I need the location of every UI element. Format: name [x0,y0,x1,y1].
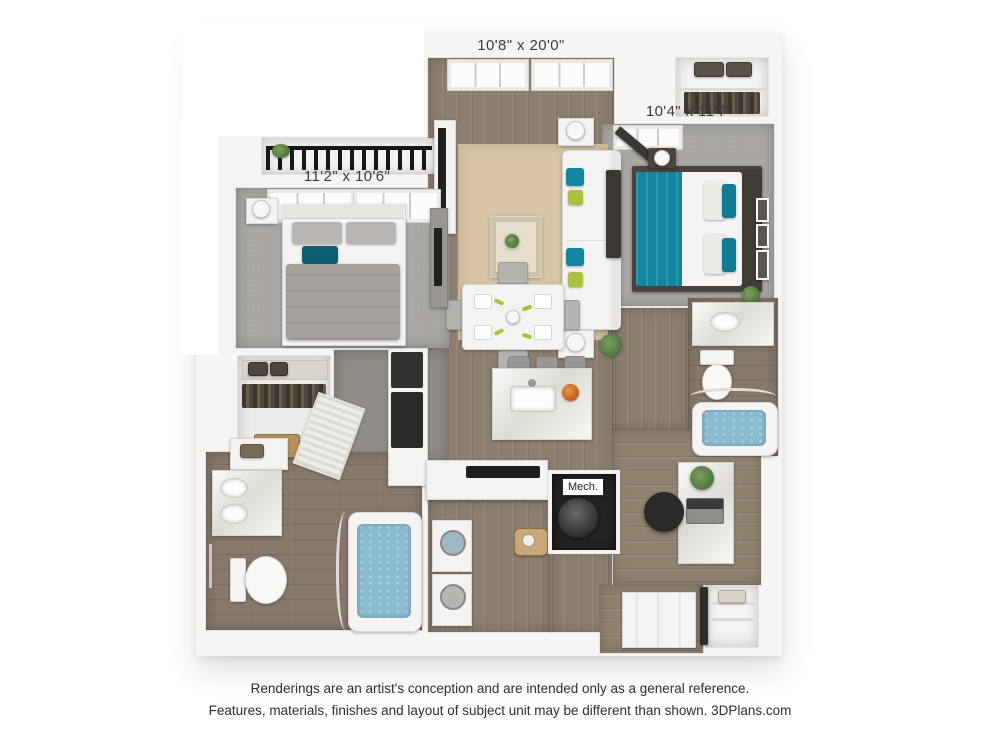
living-window-right [532,60,612,90]
bedroom-right-lamp [654,150,670,166]
sofa-pillow-teal-2 [566,248,584,266]
bed-left-pillow-2 [346,222,396,244]
washer-door [440,530,466,556]
balcony-plant [272,144,290,158]
dining-plate-4 [534,325,552,340]
pet-bowl [522,534,535,547]
entry-closet-box [718,590,746,603]
island-faucet [528,379,536,387]
coffee-table-flowers [505,234,519,248]
bathtub-left-water [357,524,411,618]
toilet-left-bowl [245,556,287,604]
bedroom-left-dimensions: 11'2" x 10'6" [304,168,390,185]
laptop [686,498,724,524]
bed-right-pillow-teal-2 [722,238,736,272]
bed-left-pillow-1 [292,222,342,244]
dining-chair-top [498,262,528,284]
fruit-bowl [562,384,579,401]
closet-right-shelf-edge [676,88,768,91]
disclaimer-line-2: Features, materials, finishes and layout… [0,703,1000,718]
refrigerator [391,352,423,388]
island-sink [510,386,556,412]
bedroom-right-dimensions: 10'4" x 11'7" [646,103,732,120]
bed-left-headboard [282,204,404,219]
closet-right-basket-1 [694,62,724,77]
towel-bar [209,544,212,588]
closet-right-basket-2 [726,62,752,77]
entry-door [622,592,696,648]
table-lamp-top [566,121,585,140]
sofa-pillow-teal-1 [566,168,584,186]
bedroom-right-dresser [606,170,621,258]
toilet-left-tank [230,558,246,602]
table-lamp-bottom [566,333,585,352]
vanity-left-sink-2 [220,504,248,524]
living-window-left [448,60,528,90]
dining-plate-3 [474,325,492,340]
bed-left-pillow-teal [302,246,338,264]
bedroom-left-lamp [252,200,270,218]
bed-right-teal-blanket [636,172,682,286]
toilet-left [228,554,288,604]
disclaimer-line-1: Renderings are an artist's conception an… [0,681,1000,696]
cooktop [466,466,540,478]
range-oven [391,392,423,448]
toilet-right-tank [700,350,734,365]
bed-left-comforter [286,264,400,340]
floorplan-render: Mech. 10'8" x 20'0" 10'4" x 11'7" 11'2" … [0,0,1000,750]
vanity-left [212,470,282,536]
entry-closet-shelf-2 [712,618,754,621]
background-cutout-left [180,120,218,355]
vanity-left-sink-1 [220,478,248,498]
office-chair [644,492,684,532]
vanity-right-sink [710,312,740,332]
mech-label: Mech. [562,478,604,496]
closet-bag-1 [248,362,268,376]
wall-art-2 [756,224,769,248]
entry-closet-door [700,587,708,645]
wall-art-1 [756,198,769,222]
sofa-pillow-green-2 [568,272,583,287]
hall-right-upper-floor [613,308,688,430]
desk-plant [690,466,714,490]
living-plant [600,334,622,356]
dryer-door [440,584,466,610]
shower-curtain-left [336,512,355,630]
living-room-dimensions: 10'8" x 20'0" [477,37,564,54]
closet-bag-2 [270,362,288,376]
bed-right-pillow-teal-1 [722,184,736,218]
balcony-railing [266,146,432,170]
dining-centerpiece [506,310,520,324]
wall-art-3 [756,250,769,280]
dining-plate-1 [474,294,492,309]
bedroom-left-tv [434,228,442,286]
dining-plate-2 [534,294,552,309]
water-heater [558,498,598,538]
linen-closet-box [240,444,264,458]
background-cutout-top-left [182,24,424,136]
bathtub-right-water [702,410,766,446]
sofa-pillow-green-1 [568,190,583,205]
